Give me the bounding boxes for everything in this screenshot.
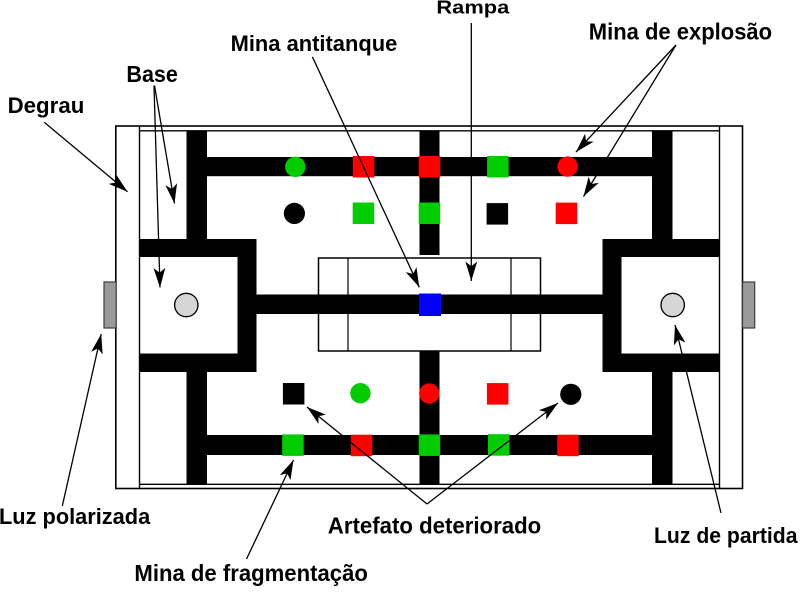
svg-text:Luz de partida: Luz de partida [654, 523, 798, 548]
svg-text:Degrau: Degrau [8, 93, 85, 118]
svg-text:Mina de explosão: Mina de explosão [589, 19, 772, 45]
svg-text:Luz polarizada: Luz polarizada [0, 504, 151, 529]
svg-text:Base: Base [126, 61, 177, 87]
svg-text:Artefato deteriorado: Artefato deteriorado [328, 513, 541, 539]
svg-text:Mina antitanque: Mina antitanque [231, 31, 398, 56]
svg-text:Mina de fragmentação: Mina de fragmentação [134, 560, 368, 586]
svg-text:Rampa: Rampa [436, 0, 510, 18]
